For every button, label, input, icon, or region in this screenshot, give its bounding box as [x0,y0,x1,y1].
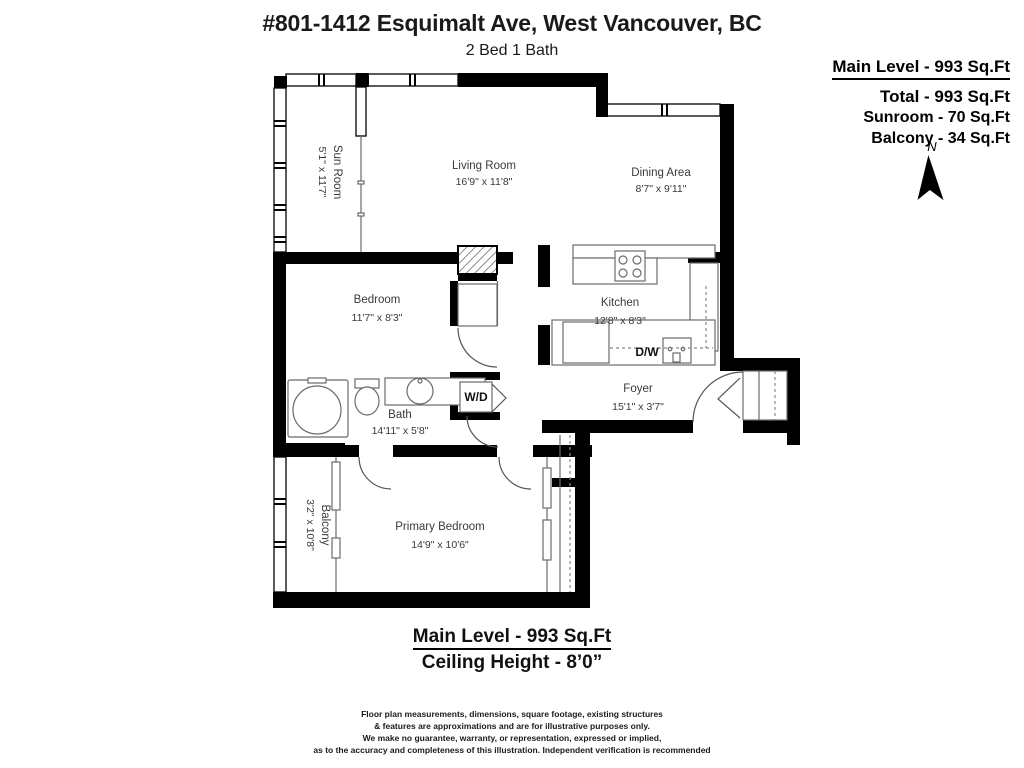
disclaimer-line: as to the accuracy and completeness of t… [0,744,1024,756]
footer-main-level: Main Level - 993 Sq.Ft [413,626,612,650]
room-dims-primary-bedroom: 14'9" x 10'6" [411,539,469,551]
room-dims-bath: 14'11" x 5'8" [372,425,429,437]
bedroom-door-arc [458,328,497,367]
north-arrow: N [908,138,952,212]
floor-plan-page: #801-1412 Esquimalt Ave, West Vancouver,… [0,0,1024,768]
room-dims-balcony: 3'2" x 10'8" [304,499,316,551]
north-label: N [927,139,937,154]
disclaimer-line: We make no guarantee, warranty, or repre… [0,732,1024,744]
room-label-primary-bedroom: Primary Bedroom [395,521,484,533]
total-area: Total - 993 Sq.Ft [832,86,1010,107]
bath-door-arc [467,416,498,447]
room-dims-sun-room: 5'1" x 11'7" [316,147,328,198]
entry-door-leaf [718,378,740,418]
room-dims-kitchen: 12'8" x 8'3" [594,315,646,327]
room-label-living-room: Living Room [452,160,516,172]
header: #801-1412 Esquimalt Ave, West Vancouver,… [0,10,1024,60]
disclaimer: Floor plan measurements, dimensions, squ… [0,708,1024,756]
disclaimer-line: & features are approximations and are fo… [0,720,1024,732]
room-dims-bedroom: 11'7" x 8'3" [352,312,403,324]
shaft-hatch [458,246,497,274]
wd-bifold-door [492,384,506,412]
footer-ceiling-height: Ceiling Height - 8’0” [0,652,1024,674]
main-level-area: Main Level - 993 Sq.Ft [832,57,1010,80]
room-label-foyer: Foyer [623,383,653,395]
room-dims-dining-area: 8'7" x 9'11" [636,183,687,195]
area-summary: Main Level - 993 Sq.Ft Total - 993 Sq.Ft… [832,57,1010,149]
sunroom-area: Sunroom - 70 Sq.Ft [832,107,1010,128]
primary-door-arc-right [499,457,531,489]
room-label-kitchen: Kitchen [601,297,639,309]
room-label-bath: Bath [388,409,412,421]
page-title: #801-1412 Esquimalt Ave, West Vancouver,… [0,10,1024,37]
footer: Main Level - 993 Sq.Ft Ceiling Height - … [0,626,1024,674]
primary-door-arc-left [359,457,391,489]
room-dims-living-room: 16'9" x 11'8" [456,176,513,188]
washer-dryer-label: W/D [464,390,488,404]
room-dims-foyer: 15'1" x 3'7" [612,401,664,413]
room-label-balcony: Balcony [319,505,331,546]
walls [273,73,800,608]
room-label-dining-area: Dining Area [631,167,691,179]
floor-plan: Sun Room 5'1" x 11'7" Living Room 16'9" … [270,70,800,615]
north-arrow-icon [914,154,943,202]
room-label-sun-room: Sun Room [331,145,343,199]
room-label-bedroom: Bedroom [354,294,401,306]
disclaimer-line: Floor plan measurements, dimensions, squ… [0,708,1024,720]
dishwasher-label: D/W [635,345,659,359]
